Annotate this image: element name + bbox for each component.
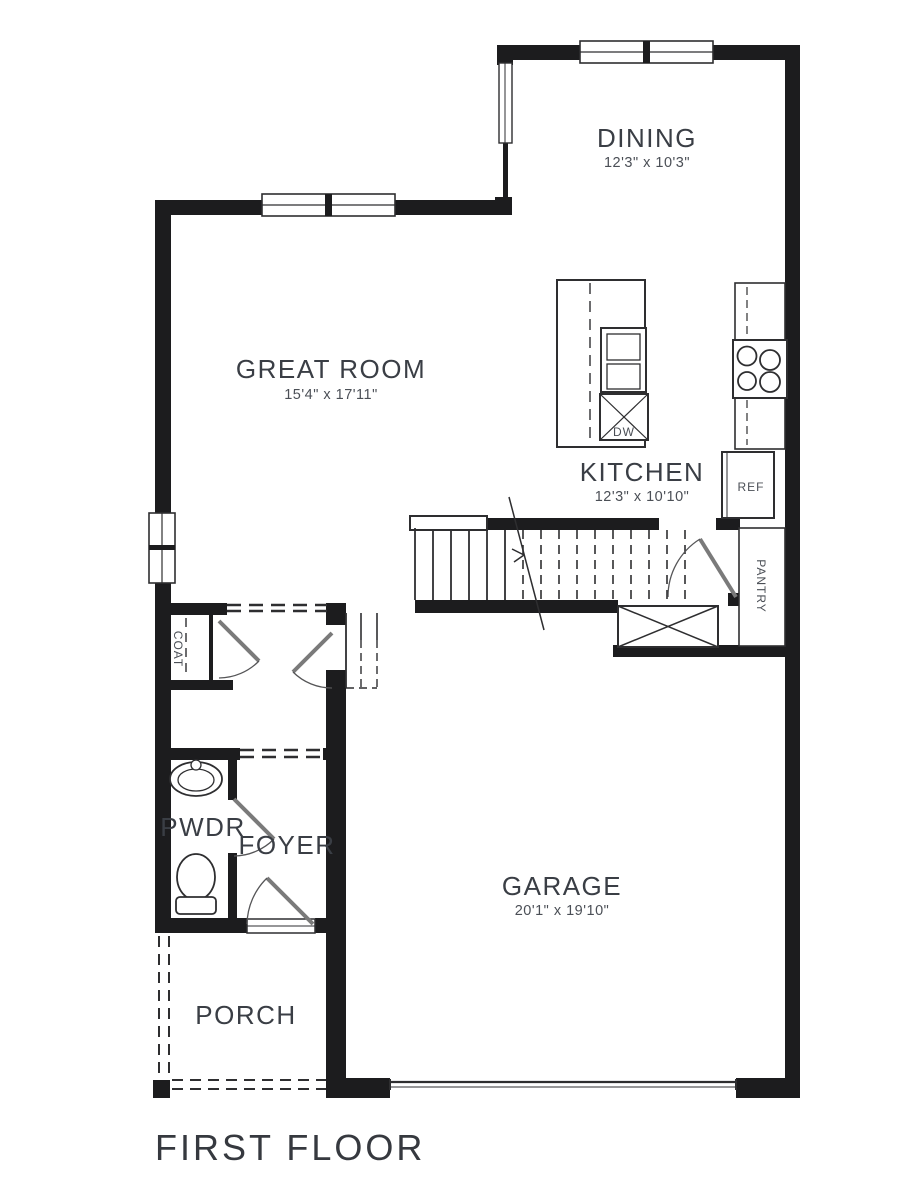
room-label-garage: GARAGE: [502, 871, 622, 901]
room-label-great-room: GREAT ROOM: [236, 354, 426, 384]
kitchen-counter: [733, 283, 787, 449]
toilet: [176, 854, 216, 914]
door-swing: [668, 539, 736, 597]
floor-plan-page: PANTRY COAT: [0, 0, 900, 1200]
front-door: [247, 878, 315, 933]
room-label-foyer: FOYER: [238, 830, 335, 860]
wall-segment: [415, 600, 618, 613]
dishwasher-label: DW: [613, 425, 635, 439]
wall-segment: [155, 200, 262, 215]
wall-segment: [163, 603, 227, 615]
wall-segment: [487, 518, 659, 530]
door-swing: [219, 621, 259, 678]
wall-segment: [785, 45, 800, 1098]
room-label-kitchen: KITCHEN: [580, 457, 705, 487]
room-dims-garage: 20'1" x 19'10": [515, 903, 610, 919]
powder-room-sink: [170, 760, 222, 796]
room-dims-great-room: 15'4" x 17'11": [284, 387, 378, 403]
coat-closet: COAT: [171, 618, 186, 678]
porch-post: [153, 1080, 170, 1098]
wall-segment: [163, 680, 233, 690]
wall-segment: [326, 670, 346, 1098]
cased-openings: [227, 605, 327, 757]
wall-segment: [155, 200, 171, 515]
walls: [153, 45, 800, 1098]
wall-segment: [326, 1078, 390, 1098]
kitchen-island: DW: [557, 280, 648, 447]
window: [580, 41, 713, 63]
room-label-porch: PORCH: [195, 1000, 296, 1030]
room-dims-dining: 12'3" x 10'3": [604, 155, 690, 171]
range-stove: [733, 340, 787, 398]
refrigerator-label: REF: [738, 480, 765, 494]
coat-label: COAT: [171, 631, 185, 667]
room-label-pwdr: PWDR: [160, 812, 245, 842]
refrigerator: REF: [722, 452, 774, 518]
wall-segment: [326, 603, 346, 625]
wall-segment: [395, 200, 512, 215]
pantry-closet: PANTRY: [739, 528, 785, 646]
room-dims-kitchen: 12'3" x 10'10": [595, 489, 690, 505]
pantry-label: PANTRY: [754, 559, 768, 613]
wall-segment: [228, 756, 237, 800]
window: [149, 513, 175, 583]
window: [499, 63, 512, 143]
wall-segment: [716, 518, 740, 530]
plan-title: FIRST FLOOR: [155, 1127, 425, 1168]
window: [262, 194, 395, 216]
wall-segment: [736, 1078, 800, 1098]
garage-door: [390, 1079, 736, 1090]
understair-storage: [618, 606, 718, 647]
stair-half-wall: [410, 516, 487, 530]
wall-segment: [209, 612, 213, 682]
dishwasher: DW: [600, 394, 648, 440]
wall-segment: [315, 918, 346, 933]
wall-segment: [155, 918, 248, 933]
floor-plan: PANTRY COAT: [0, 0, 900, 1200]
kitchen-sink: [601, 328, 646, 392]
wall-segment: [228, 853, 237, 920]
room-label-dining: DINING: [597, 123, 697, 153]
doors: [219, 539, 736, 933]
